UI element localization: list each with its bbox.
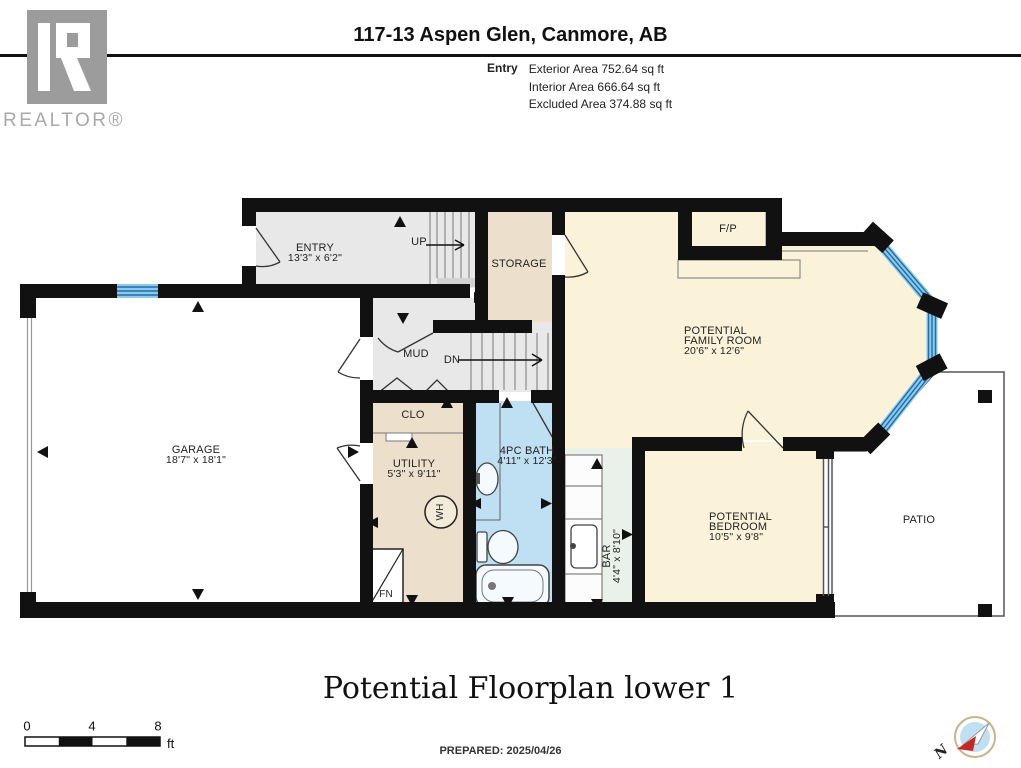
- floorplan-drawing: [0, 0, 1021, 768]
- header-rule: [0, 54, 1021, 57]
- page-title: 117-13 Aspen Glen, Canmore, AB: [120, 24, 901, 47]
- fireplace-label: F/P: [719, 224, 737, 234]
- room-label-entry: ENTRY13'3" x 6'2": [288, 243, 342, 263]
- room-label-utility: UTILITY5'3" x 9'11": [387, 459, 440, 479]
- scale-tick-8: 8: [154, 719, 161, 734]
- floorplan-page: 117-13 Aspen Glen, Canmore, AB REALTOR® …: [0, 0, 1021, 768]
- room-label-closet: CLO: [401, 410, 424, 420]
- bathtub: [476, 565, 549, 607]
- prepared-date: PREPARED: 2025/04/26: [0, 745, 1001, 757]
- room-label-storage: STORAGE: [492, 259, 547, 269]
- stairs-down-label: DN: [444, 355, 460, 365]
- room-label-family: POTENTIALFAMILY ROOM 20'6" x 12'6": [684, 326, 762, 356]
- scale-tick-0: 0: [23, 719, 30, 734]
- plan-title: Potential Floorplan lower 1: [40, 671, 1021, 706]
- bar-counter: [565, 455, 602, 604]
- interior-area: Interior Area 666.64 sq ft: [529, 79, 672, 97]
- excluded-area: Excluded Area 374.88 sq ft: [529, 96, 672, 114]
- room-label-bedroom: POTENTIALBEDROOM 10'5" x 9'8": [709, 512, 772, 542]
- water-heater-label: WH: [436, 503, 446, 520]
- room-label-garage: GARAGE18'7" x 18'1": [166, 445, 226, 465]
- area-stats: Entry Exterior Area 752.64 sq ft Interio…: [487, 61, 672, 114]
- furnace-label: FN: [379, 590, 393, 600]
- area-stats-floor-label: Entry: [487, 61, 518, 114]
- exterior-area: Exterior Area 752.64 sq ft: [529, 61, 672, 79]
- room-label-patio: PATIO: [903, 515, 935, 525]
- scale-tick-4: 4: [88, 719, 95, 734]
- stairs-up-label: UP: [411, 237, 427, 247]
- scale-unit: ft: [167, 736, 174, 751]
- room-label-bath: 4PC BATH4'11" x 12'3": [497, 446, 556, 466]
- realtor-logo-label: REALTOR®: [3, 110, 125, 132]
- realtor-logo-icon: [27, 10, 107, 104]
- room-label-bar: BAR4'4" x 8'10": [602, 529, 622, 583]
- room-label-mud: MUD: [403, 349, 429, 359]
- sliding-door: [824, 459, 829, 596]
